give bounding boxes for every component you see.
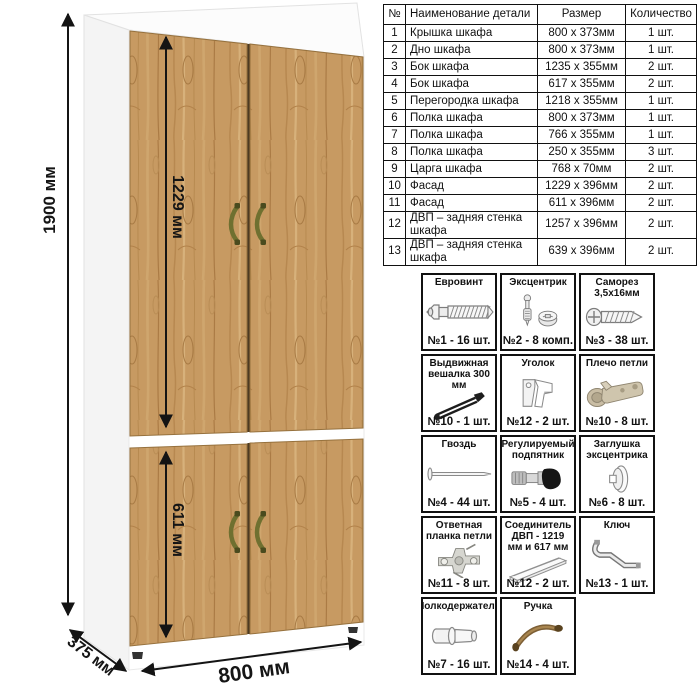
- hardware-item: Евровинт№1 - 16 шт.: [421, 273, 497, 351]
- part-quantity: 2 шт.: [626, 212, 697, 239]
- hardware-item-quantity: №3 - 38 шт.: [586, 335, 649, 347]
- table-row: 13ДВП – задняя стенка шкафа639 x 396мм2 …: [384, 238, 697, 265]
- part-quantity: 2 шт.: [626, 59, 697, 76]
- part-quantity: 1 шт.: [626, 42, 697, 59]
- part-size: 768 x 70мм: [538, 161, 626, 178]
- hardware-item-quantity: №10 - 1 шт.: [428, 416, 491, 428]
- cabinet-side-panel: [84, 15, 129, 670]
- height-dimension-label: 1900 мм: [40, 166, 59, 234]
- hardware-item: Гвоздь№4 - 44 шт.: [421, 435, 497, 513]
- row-number: 5: [384, 93, 406, 110]
- adjustable-foot-icon: [503, 461, 573, 497]
- part-name: Фасад: [406, 178, 538, 195]
- hardware-item: Регулируемый подпятник№5 - 4 шт.: [500, 435, 576, 513]
- hardware-item-quantity: №10 - 8 шт.: [586, 416, 649, 428]
- hardware-item-title: Ручка: [524, 601, 553, 612]
- hardware-item: Плечо петли№10 - 8 шт.: [579, 354, 655, 432]
- handle-icon: [503, 612, 573, 659]
- part-size: 1229 x 396мм: [538, 178, 626, 195]
- part-name: ДВП – задняя стенка шкафа: [406, 238, 538, 265]
- hardware-item: Выдвижная вешалка 300 мм№10 - 1 шт.: [421, 354, 497, 432]
- wardrobe-illustration: 1900 мм 1229 мм 611 мм 800 мм 375 мм: [0, 0, 420, 700]
- part-name: Полка шкафа: [406, 144, 538, 161]
- table-row: 6Полка шкафа800 x 373мм1 шт.: [384, 110, 697, 127]
- nail-icon: [424, 450, 494, 497]
- cam-bolt-icon: [503, 288, 573, 335]
- part-name: Крышка шкафа: [406, 25, 538, 42]
- self-tapping-screw-icon: [584, 299, 650, 335]
- hardware-item: Полкодержатель№7 - 16 шт.: [421, 597, 497, 675]
- part-name: Фасад: [406, 195, 538, 212]
- table-row: 2Дно шкафа800 x 373мм1 шт.: [384, 42, 697, 59]
- parts-table: №Наименование деталиРазмерКоличество 1Кр…: [383, 4, 697, 266]
- row-number: 9: [384, 161, 406, 178]
- part-quantity: 1 шт.: [626, 25, 697, 42]
- part-quantity: 2 шт.: [626, 238, 697, 265]
- part-name: Полка шкафа: [406, 127, 538, 144]
- hardware-item-title: Евровинт: [435, 277, 483, 288]
- table-row: 12ДВП – задняя стенка шкафа1257 x 396мм2…: [384, 212, 697, 239]
- part-name: Дно шкафа: [406, 42, 538, 59]
- table-row: 10Фасад1229 x 396мм2 шт.: [384, 178, 697, 195]
- table-row: 3Бок шкафа1235 x 355мм2 шт.: [384, 59, 697, 76]
- lower-left-door: [130, 444, 247, 646]
- hardware-item-title: Плечо петли: [586, 358, 648, 369]
- part-size: 639 x 396мм: [538, 238, 626, 265]
- part-quantity: 2 шт.: [626, 76, 697, 93]
- part-name: Полка шкафа: [406, 110, 538, 127]
- parts-table-header: №: [384, 5, 406, 25]
- part-name: Бок шкафа: [406, 59, 538, 76]
- table-row: 5Перегородка шкафа1218 x 355мм1 шт.: [384, 93, 697, 110]
- hardware-item-quantity: №7 - 16 шт.: [428, 659, 491, 671]
- cam-cover-icon: [589, 461, 645, 497]
- part-size: 1257 x 396мм: [538, 212, 626, 239]
- part-size: 1235 x 355мм: [538, 59, 626, 76]
- hardware-item-title: Уголок: [521, 358, 554, 369]
- part-name: ДВП – задняя стенка шкафа: [406, 212, 538, 239]
- part-quantity: 2 шт.: [626, 195, 697, 212]
- hardware-grid: Евровинт№1 - 16 шт.Эксцентрик№2 - 8 комп…: [421, 273, 657, 675]
- part-quantity: 2 шт.: [626, 161, 697, 178]
- shelf-pin-icon: [426, 612, 492, 659]
- part-size: 800 x 373мм: [538, 25, 626, 42]
- hardware-item-quantity: №2 - 8 комп.: [503, 335, 573, 347]
- hardware-item-title: Ответная планка петли: [424, 520, 494, 542]
- row-number: 11: [384, 195, 406, 212]
- part-quantity: 3 шт.: [626, 144, 697, 161]
- hardware-item-quantity: №1 - 16 шт.: [428, 335, 491, 347]
- table-row: 9Царга шкафа768 x 70мм2 шт.: [384, 161, 697, 178]
- hardware-item-quantity: №14 - 4 шт.: [507, 659, 570, 671]
- table-row: 11Фасад611 x 396мм2 шт.: [384, 195, 697, 212]
- hardware-item: Ручка№14 - 4 шт.: [500, 597, 576, 675]
- part-size: 611 x 396мм: [538, 195, 626, 212]
- row-number: 7: [384, 127, 406, 144]
- hardware-item: Эксцентрик№2 - 8 комп.: [500, 273, 576, 351]
- table-row: 8Полка шкафа250 x 355мм3 шт.: [384, 144, 697, 161]
- cabinet-foot: [132, 652, 143, 659]
- part-quantity: 2 шт.: [626, 178, 697, 195]
- cabinet-foot: [348, 627, 358, 633]
- row-number: 1: [384, 25, 406, 42]
- hardware-item: Соединитель ДВП - 1219 мм и 617 мм№12 - …: [500, 516, 576, 594]
- part-name: Бок шкафа: [406, 76, 538, 93]
- cabinet-doors: [130, 31, 363, 646]
- hardware-item-title: Саморез 3,5х16мм: [582, 277, 652, 299]
- corner-bracket-icon: [505, 369, 571, 416]
- hardware-item-quantity: №4 - 44 шт.: [428, 497, 491, 509]
- lower-door-dimension-label: 611 мм: [169, 503, 186, 557]
- part-name: Перегородка шкафа: [406, 93, 538, 110]
- hardware-item: Ответная планка петли№11 - 8 шт.: [421, 516, 497, 594]
- part-size: 1218 x 355мм: [538, 93, 626, 110]
- upper-right-door: [250, 44, 363, 432]
- row-number: 13: [384, 238, 406, 265]
- hdf-connector-icon: [503, 553, 573, 578]
- assembly-sheet: 1900 мм 1229 мм 611 мм 800 мм 375 мм №На…: [0, 0, 700, 700]
- part-name: Царга шкафа: [406, 161, 538, 178]
- upper-left-door: [130, 31, 247, 436]
- hardware-item-quantity: №12 - 2 шт.: [507, 578, 570, 590]
- part-quantity: 1 шт.: [626, 110, 697, 127]
- parts-table-header: Размер: [538, 5, 626, 25]
- part-quantity: 1 шт.: [626, 93, 697, 110]
- hinge-plate-icon: [424, 542, 494, 578]
- parts-table-header-row: №Наименование деталиРазмерКоличество: [384, 5, 697, 25]
- row-number: 10: [384, 178, 406, 195]
- row-number: 4: [384, 76, 406, 93]
- part-size: 800 x 373мм: [538, 110, 626, 127]
- hardware-item: Заглушка эксцентрика№6 - 8 шт.: [579, 435, 655, 513]
- part-size: 766 x 355мм: [538, 127, 626, 144]
- hardware-item-title: Полкодержатель: [421, 601, 497, 612]
- hardware-item-quantity: №11 - 8 шт.: [428, 578, 490, 590]
- hardware-item-quantity: №5 - 4 шт.: [510, 497, 566, 509]
- row-number: 8: [384, 144, 406, 161]
- part-size: 617 x 355мм: [538, 76, 626, 93]
- hardware-item: Саморез 3,5х16мм№3 - 38 шт.: [579, 273, 655, 351]
- table-row: 1Крышка шкафа800 x 373мм1 шт.: [384, 25, 697, 42]
- part-quantity: 1 шт.: [626, 127, 697, 144]
- table-row: 7Полка шкафа766 x 355мм1 шт.: [384, 127, 697, 144]
- part-size: 800 x 373мм: [538, 42, 626, 59]
- part-size: 250 x 355мм: [538, 144, 626, 161]
- pullout-hanger-icon: [424, 391, 494, 416]
- row-number: 2: [384, 42, 406, 59]
- row-number: 3: [384, 59, 406, 76]
- hardware-item-title: Заглушка эксцентрика: [582, 439, 652, 461]
- row-number: 6: [384, 110, 406, 127]
- upper-door-dimension-label: 1229 мм: [169, 175, 186, 239]
- hardware-item: Ключ№13 - 1 шт.: [579, 516, 655, 594]
- hardware-item-title: Гвоздь: [442, 439, 477, 450]
- hardware-item-title: Эксцентрик: [509, 277, 566, 288]
- hardware-item-quantity: №13 - 1 шт.: [586, 578, 649, 590]
- hardware-item: Уголок№12 - 2 шт.: [500, 354, 576, 432]
- table-row: 4Бок шкафа617 x 355мм2 шт.: [384, 76, 697, 93]
- parts-table-header: Наименование детали: [406, 5, 538, 25]
- key-icon: [584, 531, 650, 578]
- hardware-item-title: Регулируемый подпятник: [502, 439, 575, 461]
- hardware-item-quantity: №6 - 8 шт.: [589, 497, 645, 509]
- lower-right-door: [250, 439, 363, 634]
- hardware-item-title: Ключ: [604, 520, 630, 531]
- row-number: 12: [384, 212, 406, 239]
- hardware-item-quantity: №12 - 2 шт.: [507, 416, 570, 428]
- euro-screw-icon: [424, 288, 494, 335]
- parts-table-header: Количество: [626, 5, 697, 25]
- hinge-arm-icon: [582, 369, 652, 416]
